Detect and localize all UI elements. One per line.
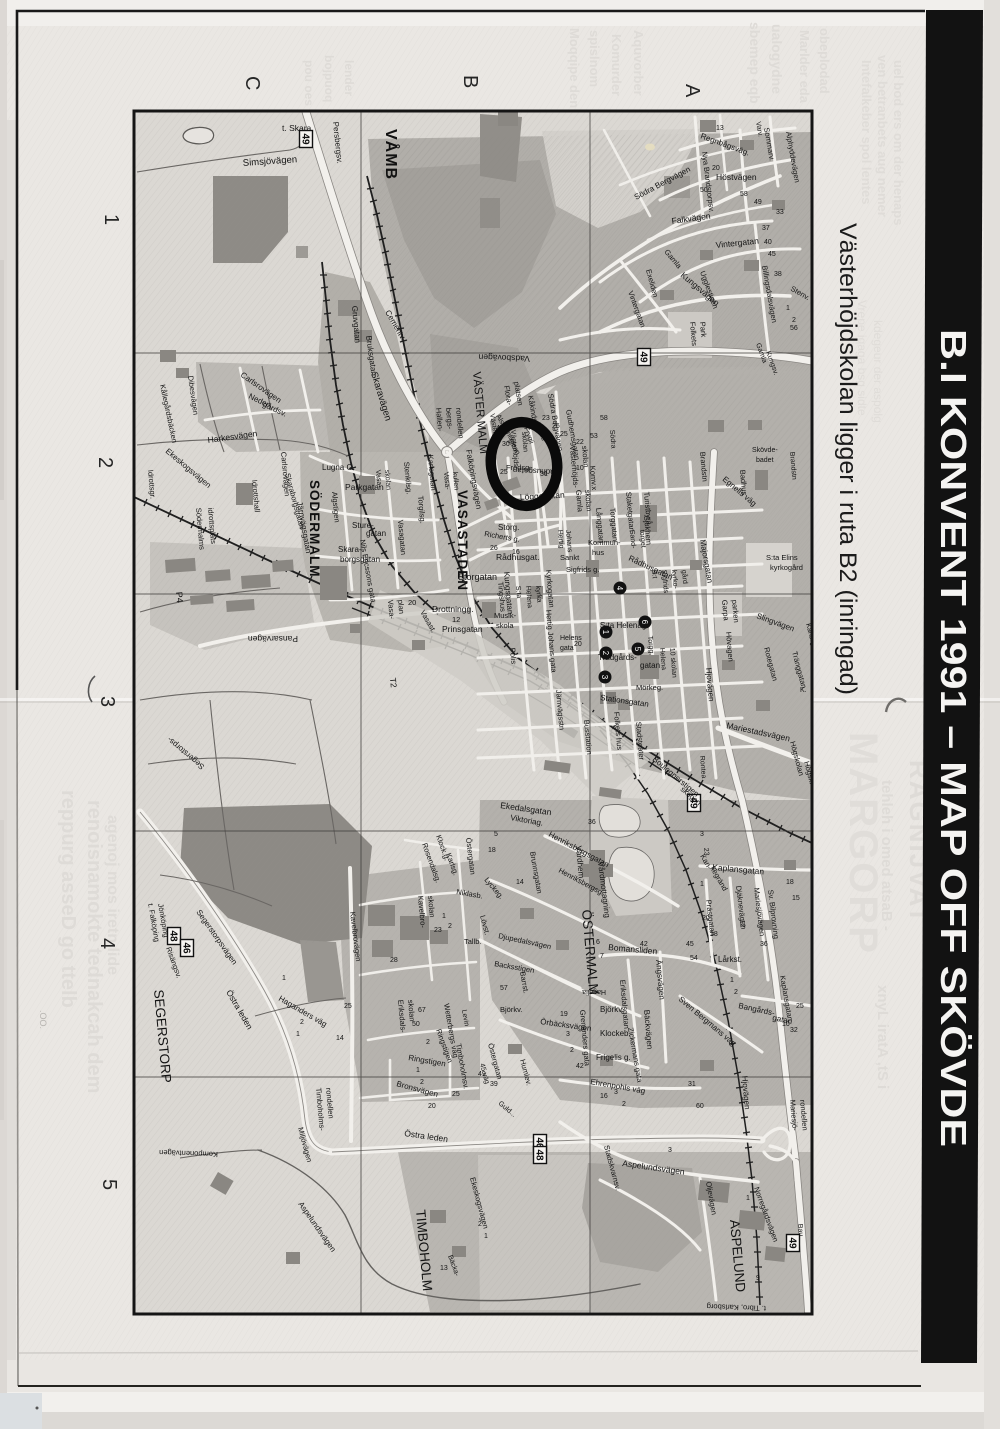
svg-text:2: 2 xyxy=(478,1221,482,1228)
svg-text:skolan: skolan xyxy=(580,445,591,467)
svg-text:kyrkogård: kyrkogård xyxy=(770,563,803,572)
svg-text:A: A xyxy=(681,84,703,98)
svg-text:spislnom: spislnom xyxy=(587,30,602,87)
svg-text:50: 50 xyxy=(700,187,708,194)
svg-text:Marlder eda: Marlder eda xyxy=(797,30,812,104)
svg-text:26: 26 xyxy=(490,545,498,552)
svg-text:1: 1 xyxy=(601,630,610,635)
svg-text:6: 6 xyxy=(596,939,600,946)
svg-text:25: 25 xyxy=(452,1091,460,1098)
svg-text:23: 23 xyxy=(702,848,710,856)
svg-text:1: 1 xyxy=(746,1195,750,1202)
svg-text:plan: plan xyxy=(396,599,406,614)
svg-text:1: 1 xyxy=(296,1031,300,1038)
svg-text:3: 3 xyxy=(668,1147,672,1154)
svg-text:12: 12 xyxy=(452,615,460,624)
svg-text:Storg.: Storg. xyxy=(498,523,519,532)
svg-text:K.: K. xyxy=(800,687,807,694)
svg-text:agenoj mos iretn lide: agenoj mos iretn lide xyxy=(104,815,121,975)
svg-text:26: 26 xyxy=(552,423,560,430)
svg-text:B.I KONVENT 1991 – MAP OFF SKÖ: B.I KONVENT 1991 – MAP OFF SKÖVDE xyxy=(933,329,974,1147)
svg-text:18: 18 xyxy=(488,847,496,854)
svg-text:33: 33 xyxy=(776,209,784,216)
svg-text:28: 28 xyxy=(390,957,398,964)
svg-text:lender: lender xyxy=(342,60,356,96)
svg-text:54: 54 xyxy=(690,955,698,962)
svg-text:Mörkeg.: Mörkeg. xyxy=(636,683,663,692)
svg-text:Garpa: Garpa xyxy=(720,599,731,621)
svg-text:Intefalkeber spol lentes: Intefalkeber spol lentes xyxy=(859,60,874,205)
svg-text:skola: skola xyxy=(496,621,514,630)
svg-text:Park: Park xyxy=(698,321,708,337)
svg-text:borgsgatan: borgsgatan xyxy=(340,555,380,564)
svg-text:Polis: Polis xyxy=(508,647,518,664)
svg-text:T2: T2 xyxy=(388,677,399,688)
svg-text:2: 2 xyxy=(300,1019,304,1026)
svg-text:2: 2 xyxy=(734,989,738,996)
svg-text:60: 60 xyxy=(696,1103,704,1110)
svg-text:25: 25 xyxy=(560,431,568,438)
svg-text:38: 38 xyxy=(774,271,782,278)
svg-text:Tallb.: Tallb. xyxy=(464,937,482,946)
svg-text:9: 9 xyxy=(756,1275,760,1282)
svg-text:1: 1 xyxy=(700,881,704,888)
svg-text:14: 14 xyxy=(336,1035,344,1042)
svg-text:Skövde-: Skövde- xyxy=(752,447,778,454)
svg-text:kdegeur der aspolg: kdegeur der aspolg xyxy=(871,320,885,423)
svg-text:sbemep eqb: sbemep eqb xyxy=(747,22,763,104)
svg-text:B: B xyxy=(459,75,481,88)
svg-text:2: 2 xyxy=(570,1047,574,1054)
svg-text:7: 7 xyxy=(600,953,604,960)
svg-text:23: 23 xyxy=(434,927,442,934)
svg-text:16: 16 xyxy=(600,1093,608,1100)
svg-text:37: 37 xyxy=(762,225,770,232)
svg-text:56: 56 xyxy=(790,325,798,332)
svg-text:49: 49 xyxy=(754,199,762,206)
svg-text:bergs-: bergs- xyxy=(444,407,455,429)
svg-text:P4: P4 xyxy=(174,591,185,603)
svg-text:20: 20 xyxy=(428,1103,436,1110)
svg-text:VASASTADEN: VASASTADEN xyxy=(455,490,470,591)
svg-text:2: 2 xyxy=(420,1079,424,1086)
svg-text:obeplodad: obeplodad xyxy=(817,28,832,94)
svg-text:badet: badet xyxy=(756,457,774,464)
svg-text:1: 1 xyxy=(100,214,122,225)
svg-text:SÖDERMALM: SÖDERMALM xyxy=(307,480,322,578)
svg-text:13: 13 xyxy=(440,1265,448,1272)
svg-text:skolan: skolan xyxy=(583,489,594,511)
svg-text:bojpuoq: bojpuoq xyxy=(322,55,336,102)
svg-text:C: C xyxy=(241,76,263,90)
svg-text:Sankt: Sankt xyxy=(560,553,580,562)
svg-text:ven betranbets aug nemer: ven betranbets aug nemer xyxy=(875,55,890,217)
svg-text:S:ta: S:ta xyxy=(514,586,522,599)
svg-text:t. Skara: t. Skara xyxy=(282,123,312,133)
svg-text:12: 12 xyxy=(738,920,746,928)
svg-text:32: 32 xyxy=(790,1027,798,1034)
svg-text:1: 1 xyxy=(786,305,790,312)
svg-text:20: 20 xyxy=(702,915,710,922)
svg-text:3: 3 xyxy=(614,1089,618,1096)
svg-text:46: 46 xyxy=(181,942,192,954)
svg-text:18: 18 xyxy=(786,879,794,886)
svg-text:2: 2 xyxy=(94,457,116,468)
svg-text:25: 25 xyxy=(796,1003,804,1010)
svg-text:skolan: skolan xyxy=(406,999,417,1021)
svg-text:57: 57 xyxy=(500,985,508,992)
svg-text:Moqqipe den: Moqqipe den xyxy=(567,28,582,108)
svg-text:Sigfrids g.: Sigfrids g. xyxy=(566,565,599,574)
svg-text:gård: gård xyxy=(680,569,689,584)
svg-text:Frigelis g.: Frigelis g. xyxy=(596,1053,631,1062)
svg-text:5: 5 xyxy=(494,831,498,838)
svg-text:Vadsbovägen: Vadsbovägen xyxy=(478,352,530,364)
svg-text:.OO.: .OO. xyxy=(38,1010,48,1029)
svg-text:1: 1 xyxy=(442,913,446,920)
svg-text:Höstvägen: Höstvägen xyxy=(716,172,757,182)
svg-text:Lårkst.: Lårkst. xyxy=(718,955,742,964)
svg-text:18: 18 xyxy=(710,931,718,938)
svg-text:Björkv.: Björkv. xyxy=(600,1005,624,1014)
svg-text:3: 3 xyxy=(96,696,118,707)
svg-text:gata: gata xyxy=(560,645,574,652)
svg-text:Bau.: Bau. xyxy=(796,1224,804,1239)
svg-text:Klockeb.: Klockeb. xyxy=(600,1029,631,1038)
svg-text:skolan: skolan xyxy=(426,895,437,917)
svg-text:3: 3 xyxy=(700,831,704,838)
svg-text:48: 48 xyxy=(534,1149,545,1161)
svg-text:ualogydne: ualogydne xyxy=(769,24,785,94)
svg-text:Björkv.: Björkv. xyxy=(500,1005,522,1014)
svg-text:uel bod ers om der henaps: uel bod ers om der henaps xyxy=(891,60,906,225)
svg-text:40: 40 xyxy=(764,239,772,246)
svg-text:tehleh i omed atsaB -: tehleh i omed atsaB - xyxy=(878,780,895,931)
svg-text:67: 67 xyxy=(418,1007,426,1014)
svg-text:Prinsgatan: Prinsgatan xyxy=(442,624,483,634)
svg-text:Trädgårds-: Trädgårds- xyxy=(598,653,637,662)
svg-text:S:ta Helenag.: S:ta Helenag. xyxy=(600,621,648,630)
svg-text:20: 20 xyxy=(712,165,720,172)
svg-text:50: 50 xyxy=(412,1021,420,1028)
svg-text:20: 20 xyxy=(408,598,416,607)
svg-text:2: 2 xyxy=(448,923,452,930)
svg-text:1: 1 xyxy=(730,977,734,984)
svg-text:23: 23 xyxy=(542,415,550,422)
svg-text:pou oes: pou oes xyxy=(302,60,316,106)
svg-text:49: 49 xyxy=(787,1237,798,1249)
svg-text:Aquvorber: Aquvorber xyxy=(631,30,646,96)
svg-text:S:ta Elins: S:ta Elins xyxy=(766,553,798,562)
svg-text:58: 58 xyxy=(600,415,608,422)
svg-text:1: 1 xyxy=(484,1233,488,1240)
svg-text:5: 5 xyxy=(98,1179,120,1190)
svg-text:Komurder: Komurder xyxy=(609,34,624,96)
svg-text:4: 4 xyxy=(615,586,624,591)
svg-text:S:t: S:t xyxy=(650,570,658,579)
svg-text:xnyL iratA ,tS i: xnyL iratA ,tS i xyxy=(874,985,891,1089)
svg-text:Pansarvägen: Pansarvägen xyxy=(248,634,298,644)
svg-text:5: 5 xyxy=(633,647,642,652)
svg-text:36: 36 xyxy=(588,819,596,826)
svg-text:39: 39 xyxy=(490,1081,498,1088)
svg-text:2: 2 xyxy=(792,317,796,324)
svg-text:25: 25 xyxy=(344,1003,352,1010)
svg-text:20: 20 xyxy=(574,641,582,648)
svg-text:Hagelia: Hagelia xyxy=(582,988,606,995)
svg-text:2: 2 xyxy=(426,1039,430,1046)
svg-text:Drottningg.: Drottningg. xyxy=(432,604,474,614)
svg-text:VÅMB: VÅMB xyxy=(382,129,401,180)
svg-text:Kommun-: Kommun- xyxy=(588,538,621,547)
svg-text:42: 42 xyxy=(576,1063,584,1070)
svg-text:Västerhöjdskolan ligger i ruta: Västerhöjdskolan ligger i ruta B2 (inrin… xyxy=(834,223,861,695)
svg-text:45: 45 xyxy=(686,941,694,948)
svg-text:14: 14 xyxy=(516,879,524,886)
svg-text:gatan: gatan xyxy=(366,529,386,538)
svg-text:3: 3 xyxy=(600,675,609,680)
svg-text:49: 49 xyxy=(638,351,649,363)
svg-text:4: 4 xyxy=(96,938,118,949)
svg-text:25: 25 xyxy=(500,469,508,476)
svg-text:45: 45 xyxy=(768,251,776,258)
svg-text:3: 3 xyxy=(566,1031,570,1038)
svg-text:reppurg asseD go ttelb: reppurg asseD go ttelb xyxy=(57,790,79,1008)
svg-text:1: 1 xyxy=(282,975,286,982)
svg-text:Lugna G.: Lugna G. xyxy=(322,463,355,472)
svg-text:19: 19 xyxy=(560,1011,568,1018)
svg-text:Musik-: Musik- xyxy=(494,611,517,620)
svg-text:Rådhusgat.: Rådhusgat. xyxy=(496,552,539,562)
svg-text:hus: hus xyxy=(592,548,604,557)
svg-text:58: 58 xyxy=(740,191,748,198)
svg-text:31: 31 xyxy=(688,1081,696,1088)
svg-text:10: 10 xyxy=(782,1021,790,1028)
svg-text:2: 2 xyxy=(622,1101,626,1108)
svg-text:13: 13 xyxy=(716,125,724,132)
svg-text:49: 49 xyxy=(300,133,311,145)
svg-text:15: 15 xyxy=(792,895,800,902)
svg-text:42: 42 xyxy=(640,941,648,948)
svg-text:gatan: gatan xyxy=(640,661,660,670)
svg-text:Vasa-: Vasa- xyxy=(386,599,397,619)
svg-text:kyrka: kyrka xyxy=(534,586,542,603)
svg-text:36: 36 xyxy=(760,941,768,948)
svg-text:53: 53 xyxy=(590,433,598,440)
svg-text:1: 1 xyxy=(416,1067,420,1074)
svg-text:Skara-: Skara- xyxy=(338,545,362,554)
